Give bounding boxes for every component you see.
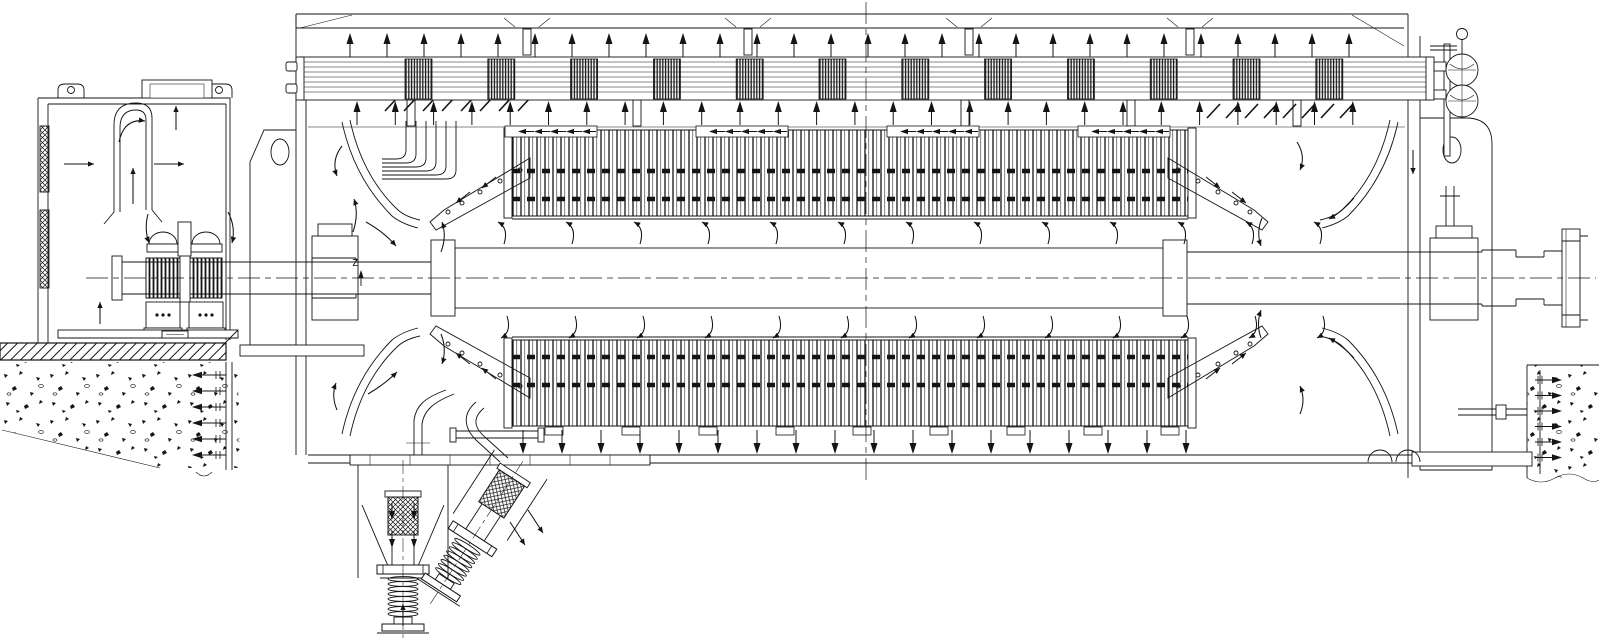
cooler-bottom-airflow-arrow [1158,101,1165,125]
airgap-lower-flow-arrow [705,316,713,338]
intake-duct [104,103,162,224]
guide-vane [1207,104,1220,118]
phase-leads [382,121,456,179]
roof-hanger-tab [965,29,973,55]
cooler-bottom-airflow-arrow [1349,101,1356,125]
shaft-datum-label: Z [352,258,358,269]
cooler-bottom-airflow-arrow [1273,101,1280,125]
cooler-bottom-airflow-arrow [1311,101,1318,125]
airgap-lower-flow-arrow [1113,316,1121,338]
cooler-bottom-airflow-arrow [775,101,782,125]
core-clamp-arrow-strip [696,126,788,137]
core-bottom-tab [622,427,640,435]
cooler-bottom-airflow-arrow [1081,101,1088,125]
core-bottom-tab [1007,427,1025,435]
outlet-down-arrow [871,430,878,454]
airgap-upper-flow-arrow [498,222,506,244]
cooler-top-airflow-arrow [458,33,465,57]
cooler-bottom-airflow-arrow [545,101,552,125]
cooler-top-airflow-arrow [1272,33,1279,57]
outlet-down-arrow [910,430,917,454]
core-clamp-arrow-strip [1078,126,1170,137]
cooler-bottom-airflow-arrow [698,101,705,125]
cooler-bottom-airflow-arrow [851,101,858,125]
cooler-bottom-airflow-arrow [392,101,399,125]
cooler-fin-section [571,59,598,99]
left-concrete-block [2,362,240,468]
outlet-down-arrow [520,430,527,454]
roof-hanger-tab [744,29,752,55]
cooler-top-airflow-arrow [347,33,354,57]
cooler-fin-section [488,59,515,99]
airflow-arrows [64,33,1413,626]
cooler-bottom-airflow-arrow [1234,101,1241,125]
airgap-lower-flow-arrow [637,316,645,338]
cooler-left-stub [286,62,297,71]
cooler-fin-section [1316,59,1343,99]
cooler-top-airflow-arrow [1013,33,1020,57]
cooler-top-airflow-arrow [606,33,613,57]
airgap-lower-flow-arrow [841,316,849,338]
airgap-upper-flow-arrow [974,222,982,244]
outlet-down-arrow [1066,430,1073,454]
air-filter [40,126,49,192]
core-bottom-tab [699,427,717,435]
cooler-top-airflow-arrow [939,33,946,57]
cooler-bottom-airflow-arrow [660,101,667,125]
airgap-lower-flow-arrow [1317,316,1325,338]
cooler-fin-section [902,59,929,99]
cooler-fin-section [985,59,1012,99]
cooler-top-airflow-arrow [643,33,650,57]
airgap-lower-flow-arrow [1249,316,1257,338]
outlet-down-arrow [1027,430,1034,454]
right-bearing-bracket [1368,118,1532,470]
cooler-top-airflow-arrow [717,33,724,57]
cooler-top-airflow-arrow [1309,33,1316,57]
cooler-top-airflow-arrow [902,33,909,57]
cooler-bottom-airflow-arrow [1005,101,1012,125]
airgap-upper-flow-arrow [838,222,846,244]
cooler-top-airflow-arrow [1124,33,1131,57]
airgap-lower-flow-arrow [501,316,509,338]
cooler-top-airflow-arrow [680,33,687,57]
cooler-top-airflow-arrow [976,33,983,57]
outlet-down-arrow [676,430,683,454]
cooler-top-airflow-arrow [532,33,539,57]
cooler-fin-section [1150,59,1177,99]
cooler-bottom-airflow-arrow [507,101,514,125]
cooler-top-airflow-arrow [1050,33,1057,57]
cooler-fin-section [736,59,763,99]
cooler-top-airflow-arrow [1235,33,1242,57]
core-bottom-tab [930,427,948,435]
stator-core-upper [504,128,1196,219]
outlet-down-arrow [988,430,995,454]
airgap-upper-flow-arrow [770,222,778,244]
cooler-top-airflow-arrow [1346,33,1353,57]
outlet-down-arrow [832,430,839,454]
airgap-upper-flow-arrow [1042,222,1050,244]
inclined-terminal-bushing [405,445,548,620]
cooler-left-stub [286,84,297,93]
cooler-bottom-airflow-arrow [583,101,590,125]
airgap-lower-flow-arrow [1045,316,1053,338]
core-clamp-arrow-strip [887,126,979,137]
cooler-bottom-airflow-arrow [622,101,629,125]
cooler-bottom-airflow-arrow [813,101,820,125]
airgap-upper-flow-arrow [906,222,914,244]
airgap-upper-flow-arrow [1246,222,1254,244]
air-filter [40,210,49,288]
cooler-bottom-airflow-arrow [1120,101,1127,125]
roof-hanger-tab [1186,29,1194,55]
airgap-lower-flow-arrow [977,316,985,338]
airgap-lower-flow-arrow [569,316,577,338]
cooler-top-airflow-arrow [384,33,391,57]
cooler-fin-section [405,59,432,99]
cooler-top-airflow-arrow [865,33,872,57]
cooler-bottom-airflow-arrow [1043,101,1050,125]
cooler-top-airflow-arrow [1087,33,1094,57]
airgap-upper-flow-arrow [1110,222,1118,244]
cooler-fin-section [653,59,680,99]
cooler-top-airflow-arrow [828,33,835,57]
cooler-top-airflow-arrow [791,33,798,57]
airgap-lower-flow-arrow [909,316,917,338]
outlet-down-arrow [1183,430,1190,454]
airgap-upper-flow-arrow [566,222,574,244]
cooler-top-airflow-arrow [754,33,761,57]
airgap-upper-flow-arrow [702,222,710,244]
cooler-bottom-airflow-arrow [1196,101,1203,125]
cooler-bottom-airflow-arrow [737,101,744,125]
outlet-down-arrow [949,430,956,454]
plenum-tab [961,100,969,126]
left-foundation-slab [0,343,240,476]
cooler-fin-section [1067,59,1094,99]
airgap-lower-flow-arrow [1181,316,1189,338]
core-bottom-tab [853,427,871,435]
outlet-down-arrow [598,430,605,454]
cooler-bottom-airflow-arrow [354,101,361,125]
cooler-bottom-airflow-arrow [468,101,475,125]
plenum-tab [1293,100,1301,126]
cooler-bottom-airflow-arrow [928,101,935,125]
core-bottom-tab [776,427,794,435]
core-bottom-tab [1161,427,1179,435]
stator-core-lower [504,337,1196,428]
guide-vane [1321,104,1334,118]
airgap-upper-flow-arrow [634,222,642,244]
left-bearing-pedestal [240,130,364,356]
airgap-lower-flow-arrow [773,316,781,338]
cooler-top-airflow-arrow [569,33,576,57]
core-bottom-tab [1084,427,1102,435]
cooler-top-airflow-arrow [421,33,428,57]
plenum-tab [633,100,641,126]
outlet-down-arrow [1105,430,1112,454]
cooler-top-airflow-arrow [1161,33,1168,57]
cooler-fin-section [819,59,846,99]
cooler-vent-valve [1457,29,1468,40]
airgap-upper-flow-arrow [1314,222,1322,244]
core-bottom-tab [545,427,563,435]
drawing-canvas: Z [0,0,1599,642]
core-clamp-arrow-strip [505,126,597,137]
outlet-down-arrow [1144,430,1151,454]
cooler-bottom-airflow-arrow [890,101,897,125]
roof-hanger-tab [523,29,531,55]
plenum-tab [1127,100,1135,126]
cooler-top-airflow-arrow [495,33,502,57]
cooler-top-airflow-arrow [1198,33,1205,57]
outlet-down-arrow [754,430,761,454]
guide-vane [1245,104,1258,118]
cooler-fin-section [1233,59,1260,99]
